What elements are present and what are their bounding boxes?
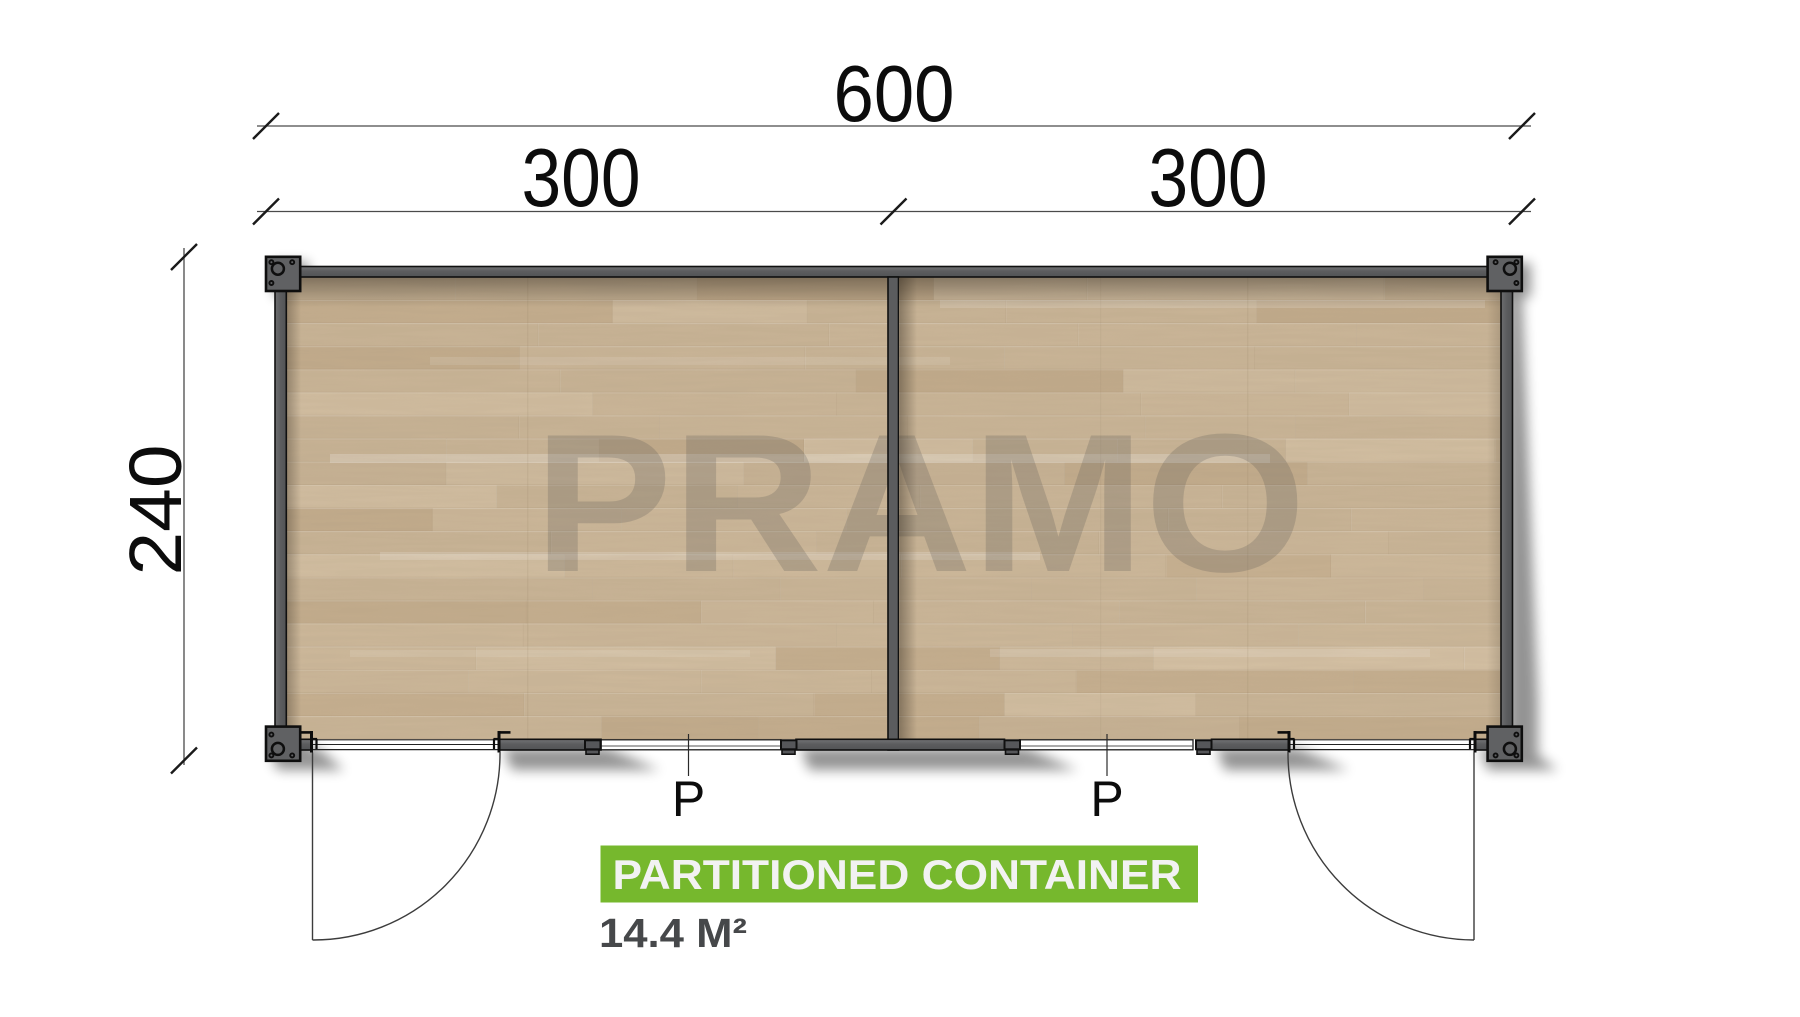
svg-text:14.4 M²: 14.4 M² <box>599 910 747 956</box>
svg-text:PRAMO: PRAMO <box>534 393 1306 613</box>
svg-text:240: 240 <box>114 445 197 576</box>
svg-text:P: P <box>1090 771 1123 827</box>
svg-text:PARTITIONED CONTAINER: PARTITIONED CONTAINER <box>613 851 1182 898</box>
svg-text:300: 300 <box>522 131 641 224</box>
svg-text:600: 600 <box>834 49 955 138</box>
svg-text:P: P <box>672 771 705 827</box>
svg-text:300: 300 <box>1149 131 1268 224</box>
